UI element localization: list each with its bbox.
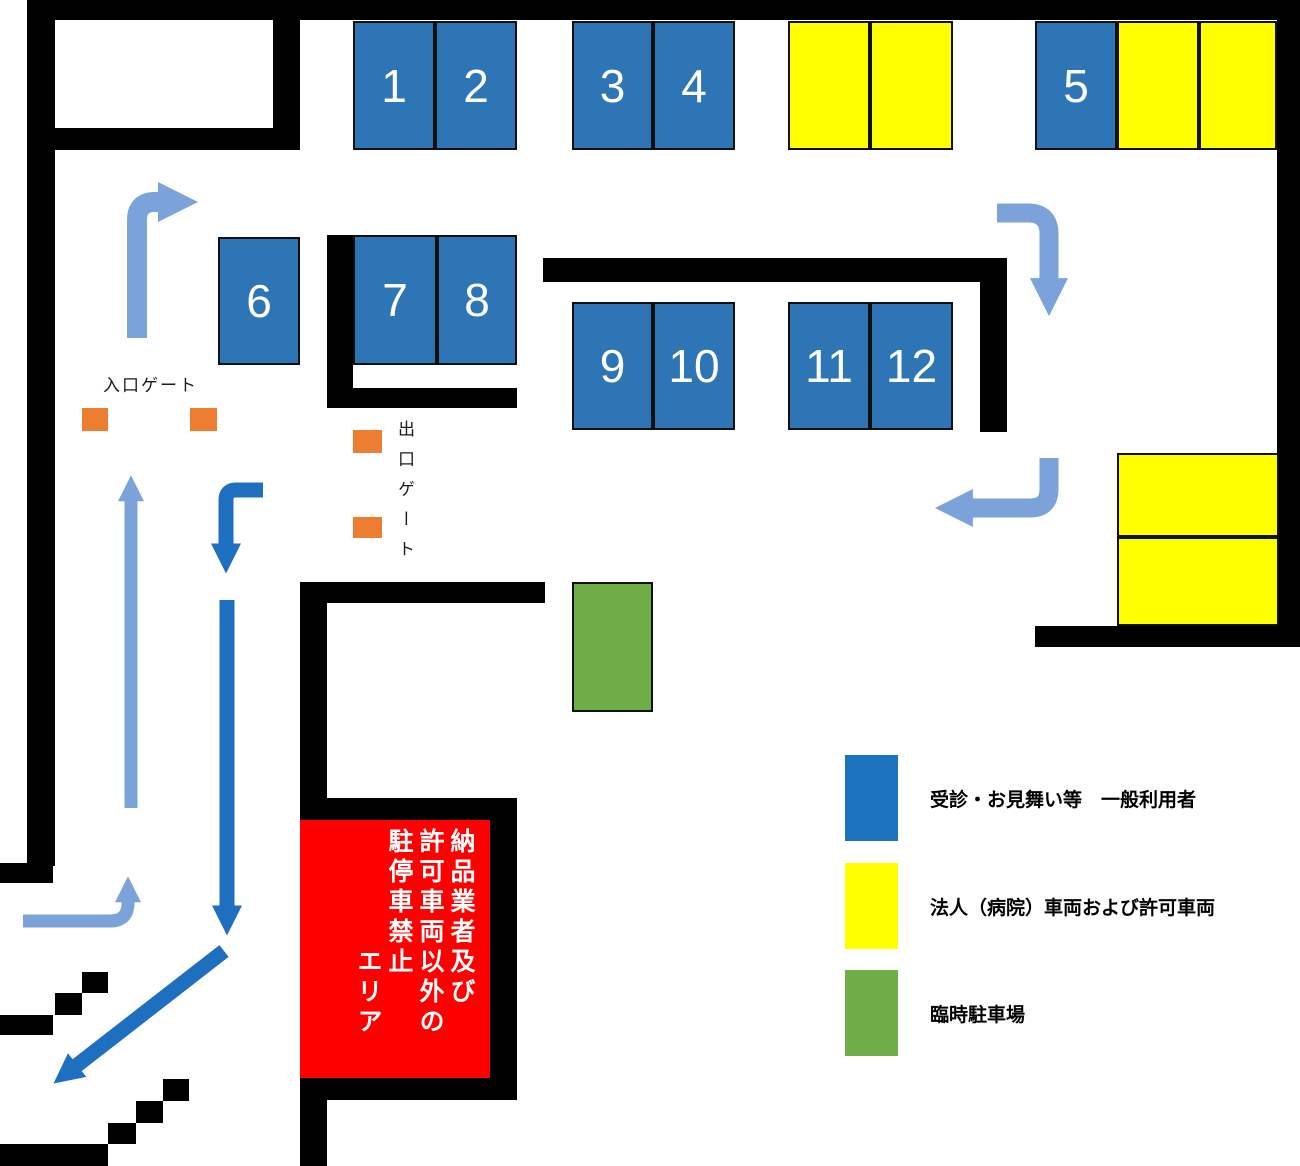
parking-space-4: 4 xyxy=(653,21,735,150)
permitted-space xyxy=(1199,21,1277,150)
entrance-gate-marker-right xyxy=(190,408,217,431)
stair-step xyxy=(136,1101,163,1123)
entrance-gate-label: 入口ゲート xyxy=(103,371,198,396)
stair-step xyxy=(163,1079,189,1101)
parking-space-10: 10 xyxy=(653,302,735,430)
legend-label-general: 受診・お見舞い等 一般利用者 xyxy=(930,785,1196,812)
parking-space-7: 7 xyxy=(353,235,437,365)
legend-swatch-yellow xyxy=(845,863,898,949)
legend-swatch-blue xyxy=(845,755,898,841)
legend-label-temporary: 臨時駐車場 xyxy=(930,1000,1025,1027)
wall-left xyxy=(27,0,55,866)
permitted-space xyxy=(788,21,870,150)
legend-item-permitted: 法人（病院）車両および許可車両 xyxy=(845,863,1215,949)
legend-item-general: 受診・お見舞い等 一般利用者 xyxy=(845,755,1196,841)
parking-space-12: 12 xyxy=(870,302,953,430)
legend-swatch-green xyxy=(845,970,898,1056)
stair-step xyxy=(82,972,108,993)
wall-redzone-left xyxy=(300,582,327,820)
temporary-parking-space xyxy=(572,582,653,712)
permitted-space xyxy=(1117,537,1279,626)
permitted-space xyxy=(1117,21,1199,150)
wall-bottom-right xyxy=(1035,626,1300,647)
entry-flow-arrow-bottom-left xyxy=(23,901,128,921)
parking-space-2: 2 xyxy=(435,21,517,150)
wall-redzone-right xyxy=(490,820,517,1078)
stair-step xyxy=(55,993,82,1015)
wall-mid-top xyxy=(543,258,1007,282)
wall-stall7-left xyxy=(327,235,353,408)
restricted-area: 納品業者及び 許可車両以外の 駐停車禁止 エリア xyxy=(300,820,490,1078)
parking-space-1: 1 xyxy=(353,21,435,150)
entrance-gate-marker-left xyxy=(82,408,108,431)
stair-base xyxy=(0,1144,108,1166)
parking-space-11: 11 xyxy=(788,302,870,430)
stair-base xyxy=(0,1015,53,1035)
wall-mid-right xyxy=(980,282,1007,432)
wall-redzone-bottom xyxy=(300,1078,517,1100)
exit-flow-arrow-diagonal xyxy=(76,951,224,1066)
wall-redzone-left-bottom xyxy=(300,1100,327,1166)
wall-redzone-top xyxy=(300,582,545,603)
exit-gate-label: 出口ゲート xyxy=(392,420,417,595)
parking-space-5: 5 xyxy=(1035,21,1117,150)
exit-gate-marker-top xyxy=(353,430,382,453)
restricted-area-text: 納品業者及び 許可車両以外の 駐停車禁止 エリア xyxy=(352,828,476,1038)
entry-flow-arrow-top-left xyxy=(137,202,160,338)
wall-office-bottom xyxy=(55,128,300,150)
wall-left-stub xyxy=(0,863,53,883)
stair-step xyxy=(108,1123,136,1144)
legend-label-permitted: 法人（病院）車両および許可車両 xyxy=(930,893,1215,920)
permitted-space xyxy=(870,21,953,150)
parking-space-3: 3 xyxy=(572,21,653,150)
wall-redzone-inner-bottom xyxy=(327,798,517,820)
exit-gate-marker-bottom xyxy=(353,517,382,538)
legend-item-temporary: 臨時駐車場 xyxy=(845,970,1025,1056)
parking-lot-map: 1 2 3 4 5 6 7 8 9 10 11 12 入口ゲート 出口ゲート 納… xyxy=(0,0,1300,1166)
permitted-space xyxy=(1117,453,1279,537)
wall-top xyxy=(27,0,1300,20)
wall-right xyxy=(1277,0,1300,647)
parking-space-9: 9 xyxy=(572,302,653,430)
exit-flow-arrow-elbow xyxy=(226,490,263,545)
wall-stall7-bottom xyxy=(353,388,517,408)
entry-flow-arrow-right xyxy=(971,458,1049,508)
parking-space-8: 8 xyxy=(437,235,517,365)
parking-space-6: 6 xyxy=(218,237,300,365)
